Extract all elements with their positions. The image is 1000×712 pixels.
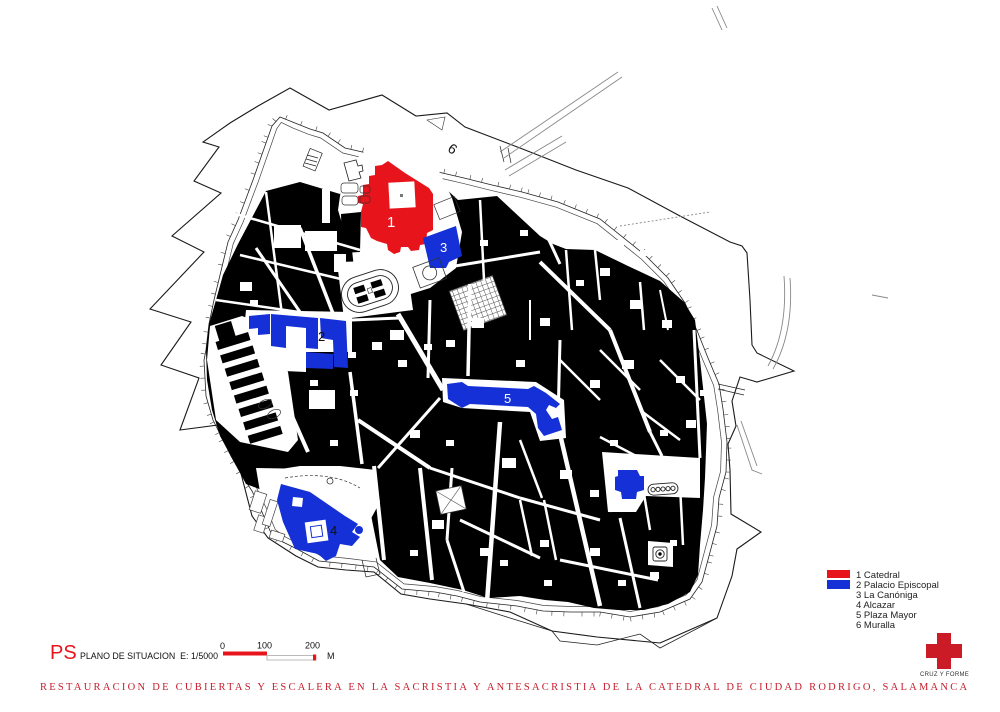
svg-text:PLANO DE SITUACION E: 1/5000: PLANO DE SITUACION E: 1/5000 [80,651,218,661]
svg-text:4: 4 [330,523,337,538]
svg-text:M: M [327,651,335,661]
svg-text:3: 3 [440,240,447,255]
svg-text:0: 0 [220,641,225,651]
svg-text:6 Muralla: 6 Muralla [856,620,896,631]
svg-text:CRUZ Y FORME: CRUZ Y FORME [920,672,969,678]
svg-text:2: 2 [318,329,325,344]
svg-text:100: 100 [257,641,272,651]
svg-text:PS: PS [50,642,77,664]
svg-text:RESTAURACION DE CUBIERTAS Y ES: RESTAURACION DE CUBIERTAS Y ESCALERA EN … [40,682,969,693]
svg-text:1: 1 [387,214,395,231]
svg-text:200: 200 [305,641,320,651]
svg-text:5: 5 [504,391,511,406]
